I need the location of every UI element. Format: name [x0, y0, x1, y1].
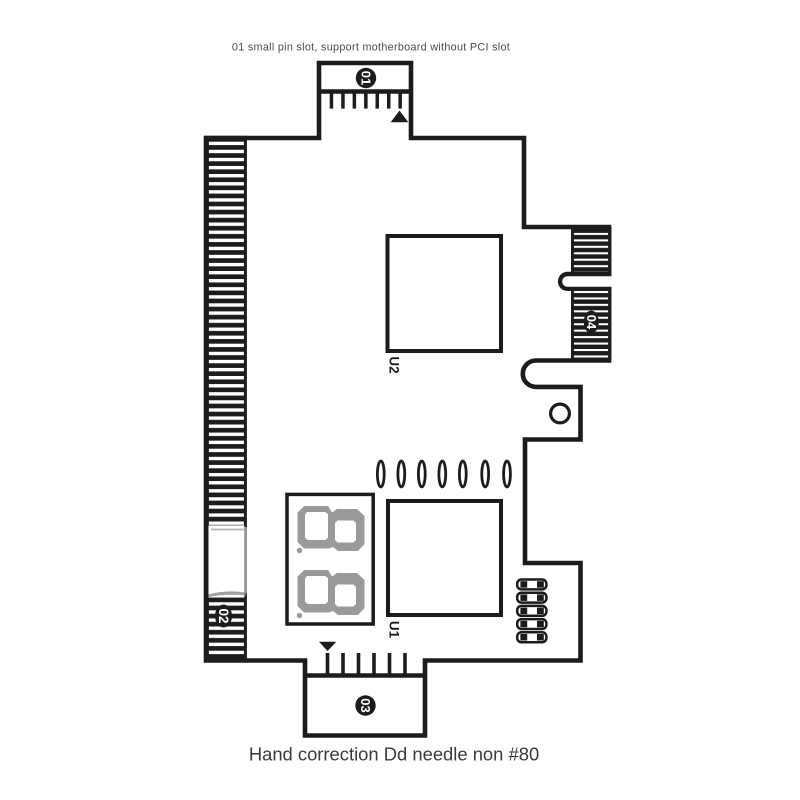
svg-text:01 small pin slot, support mot: 01 small pin slot, support motherboard w…	[232, 41, 510, 53]
svg-text:U1: U1	[387, 621, 402, 639]
svg-text:Hand correction Dd needle non: Hand correction Dd needle non #80	[249, 744, 539, 765]
svg-text:U2: U2	[387, 356, 402, 373]
svg-text:02: 02	[216, 608, 231, 623]
svg-text:04: 04	[584, 315, 599, 330]
svg-text:01: 01	[359, 71, 374, 85]
svg-text:03: 03	[358, 698, 373, 712]
